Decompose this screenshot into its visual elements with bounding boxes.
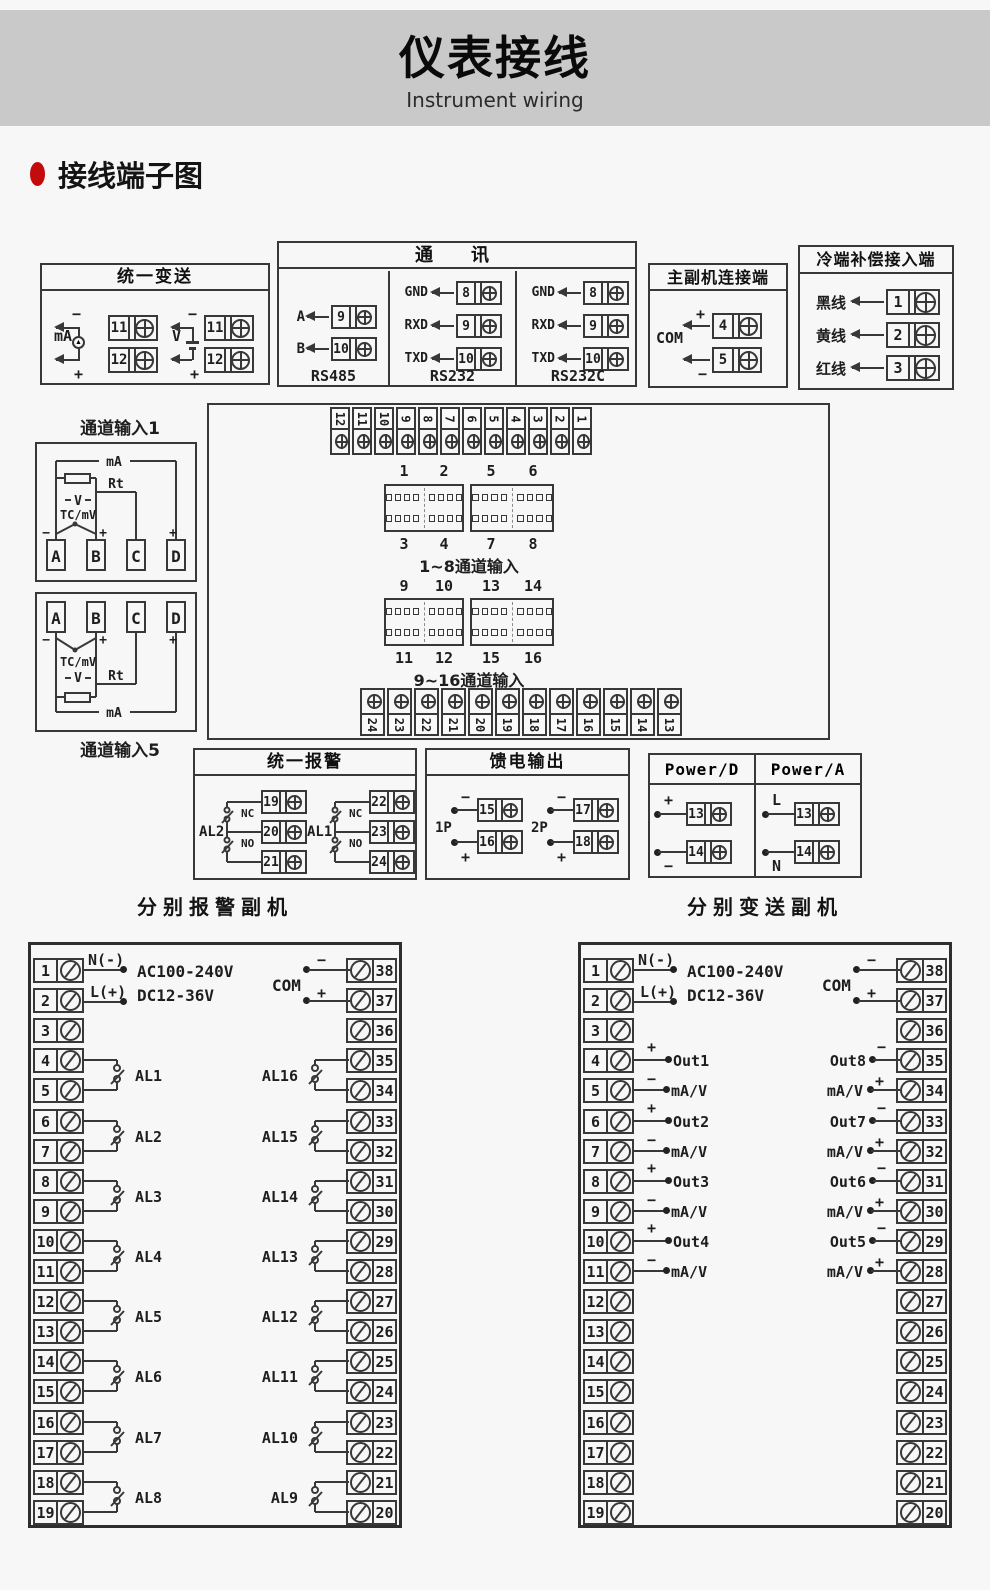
output-label: Out1	[673, 1052, 709, 1070]
terminal-cell: 9	[33, 1199, 84, 1224]
screw-slot-icon	[60, 1080, 81, 1101]
terminal-cell: 8	[583, 1169, 634, 1194]
screw-cross-icon	[394, 694, 409, 709]
output-label: Out8	[806, 1052, 866, 1070]
screw-cross-icon	[502, 694, 517, 709]
master-slave-title: 主副机连接端	[650, 265, 786, 291]
terminal-number: 12	[204, 347, 226, 373]
current-source-icon: ▲	[72, 336, 85, 349]
terminal-number: 11	[108, 315, 130, 341]
ma-label: mA	[106, 706, 122, 721]
terminal-cell: 36	[896, 1018, 947, 1043]
terminal-12: 12	[204, 347, 254, 373]
terminal-cell: 15	[583, 1379, 634, 1404]
signal-label: GND	[519, 285, 555, 300]
terminal-screw	[576, 688, 601, 715]
pin-icon	[482, 494, 489, 501]
terminal-cell: 11	[352, 407, 372, 455]
com-label: COM	[272, 976, 301, 995]
wire	[633, 1210, 665, 1212]
wire-dot	[663, 1147, 670, 1154]
screw-slot-icon	[60, 1381, 81, 1402]
screw-cross-icon	[495, 798, 523, 822]
wire-dot	[670, 998, 677, 1005]
signal-label: A	[281, 309, 305, 325]
terminal-number: 20	[468, 713, 493, 736]
channel1-schematic: mA Rt V TC/mV − + + A B C D	[37, 444, 195, 580]
conn-label: 4	[435, 535, 453, 553]
wire	[192, 350, 194, 360]
terminal-cell: 13	[657, 688, 682, 736]
pin-icon	[395, 608, 401, 615]
terminal-cell: 26	[346, 1319, 397, 1344]
screw-cross-icon	[601, 314, 629, 338]
terminal-cell: 36	[346, 1018, 397, 1043]
column-caption: RS232C	[517, 367, 639, 385]
minus-sign: −	[867, 951, 876, 969]
terminal-11: 11	[204, 315, 254, 341]
terminal-cell: 16	[33, 1410, 84, 1435]
wire-arrow-icon	[684, 325, 710, 327]
wire-dot	[663, 1267, 670, 1274]
wire-arrow-icon	[307, 316, 329, 318]
alarm-label: AL2	[135, 1128, 162, 1146]
screw-slot-icon	[610, 1201, 631, 1222]
terminal-23: 23	[369, 820, 415, 844]
terminal-number: 16	[576, 713, 601, 736]
plus-sign: +	[875, 1072, 884, 1090]
terminal-number: 9	[331, 305, 351, 329]
plus-sign: +	[875, 1193, 884, 1211]
output-unit-label: mA/V	[803, 1082, 863, 1100]
alarm-label: AL4	[135, 1248, 162, 1266]
wire	[871, 1089, 900, 1091]
wire-arrow-icon	[559, 292, 581, 294]
terminal-screw	[462, 428, 482, 455]
screw-cross-icon	[812, 840, 840, 864]
terminal-cell: 35	[346, 1048, 397, 1073]
terminal-cell: 33	[346, 1109, 397, 1134]
terminal-cell: 28	[346, 1259, 397, 1284]
wire-arrow-icon	[432, 325, 454, 327]
channel5-box: − + + TC/mV V Rt mA A B C D	[35, 592, 197, 732]
terminal-cell: 3	[528, 407, 548, 455]
terminal-number: 6	[462, 407, 482, 430]
screw-cross-icon	[349, 337, 377, 361]
no-label: NO	[349, 837, 362, 850]
terminal-screw	[572, 428, 592, 455]
terminal-cell: 26	[896, 1319, 947, 1344]
terminal: 9	[331, 305, 377, 329]
alarm-switch	[303, 1169, 349, 1227]
screw-slot-icon	[900, 1020, 921, 1041]
terminal-number: 4	[712, 313, 734, 339]
screw-slot-icon	[350, 1020, 371, 1041]
wire-arrow-icon	[559, 358, 581, 360]
terminal-number: 2	[886, 322, 910, 348]
screw-cross-icon	[467, 434, 480, 449]
plus-sign: +	[169, 633, 177, 648]
terminal-number: 17	[549, 713, 574, 736]
wire-arrow-icon	[852, 301, 884, 303]
screw-slot-icon	[350, 1171, 371, 1192]
screw-slot-icon	[900, 1321, 921, 1342]
com-label: COM	[656, 329, 683, 347]
terminal-cell: 21	[441, 688, 466, 736]
pin-icon	[517, 494, 524, 501]
terminal-cell: 37	[346, 988, 397, 1013]
terminal-cell: 22	[414, 688, 439, 736]
pin-icon	[456, 608, 462, 615]
output-unit-label: mA/V	[671, 1143, 707, 1161]
screw-slot-icon	[60, 1171, 81, 1192]
screw-slot-icon	[900, 990, 921, 1011]
pin-icon	[491, 515, 498, 522]
screw-slot-icon	[900, 1050, 921, 1071]
wire	[873, 1180, 900, 1182]
terminal-number: 22	[369, 790, 389, 814]
screw-slot-icon	[350, 1412, 371, 1433]
pin-icon	[413, 608, 419, 615]
alarm-switch	[83, 1289, 129, 1347]
terminal-number: 10	[331, 337, 351, 361]
terminal-13: 13	[686, 802, 732, 826]
wire-dot	[665, 1237, 672, 1244]
screw-slot-icon	[900, 1111, 921, 1132]
pin-c: C	[131, 547, 141, 566]
wire-arrow-icon	[172, 359, 192, 361]
minus-sign: −	[647, 1070, 656, 1088]
pin-icon	[395, 515, 401, 522]
terminal-cell: 21	[896, 1470, 947, 1495]
wire	[766, 851, 794, 853]
section-title: 接线端子图	[58, 153, 203, 195]
screw-cross-icon	[812, 802, 840, 826]
wire	[455, 809, 477, 811]
screw-cross-icon	[448, 694, 463, 709]
screw-slot-icon	[900, 1412, 921, 1433]
channel1-box: mA Rt V TC/mV − + + A B C D	[35, 442, 197, 582]
terminal-cell: 1	[33, 958, 84, 983]
conn-label: 12	[432, 649, 456, 667]
nc-label: NC	[241, 807, 254, 820]
wire-arrow-icon	[559, 325, 581, 327]
terminal-number: 11	[352, 407, 372, 430]
terminal-screw	[550, 428, 570, 455]
terminal-screw	[468, 688, 493, 715]
pin-icon	[438, 629, 444, 636]
terminal-cell: 30	[346, 1199, 397, 1224]
minus-sign: −	[877, 1159, 886, 1177]
terminal-cell: 9	[396, 407, 416, 455]
screw-slot-icon	[60, 1201, 81, 1222]
screw-cross-icon	[379, 434, 392, 449]
screw-cross-icon	[555, 434, 568, 449]
pin-icon	[501, 494, 508, 501]
screw-cross-icon	[224, 315, 254, 341]
feed-power-box: 馈电输出 1P − 15 + 16 2P − 17 + 18	[425, 748, 630, 880]
terminal-14: 14	[686, 840, 732, 864]
alarm-switch	[83, 1470, 129, 1528]
wire	[871, 1150, 900, 1152]
terminal-cell: 20	[346, 1500, 397, 1525]
screw-cross-icon	[704, 840, 732, 864]
alarm-label: AL3	[135, 1188, 162, 1206]
pin-connector	[384, 598, 464, 646]
screw-slot-icon	[60, 1321, 81, 1342]
terminal-cell: 27	[896, 1289, 947, 1314]
screw-cross-icon	[664, 694, 679, 709]
screw-slot-icon	[350, 1291, 371, 1312]
wire-dot	[663, 1086, 670, 1093]
terminal-22: 22	[369, 790, 415, 814]
comm-title: 通 讯	[279, 243, 635, 269]
terminal-number: 7	[440, 407, 460, 430]
screw-slot-icon	[900, 1261, 921, 1282]
nc-label: NC	[349, 807, 362, 820]
terminal-number: 14	[630, 713, 655, 736]
minus-sign: −	[647, 1131, 656, 1149]
terminal-number: 5	[712, 347, 734, 373]
v-label: V	[74, 671, 82, 686]
pin-icon	[456, 515, 462, 522]
pin-icon	[527, 629, 534, 636]
output-label: Out3	[673, 1173, 709, 1191]
screw-cross-icon	[357, 434, 370, 449]
wire	[633, 1001, 673, 1003]
wire-dot	[120, 966, 127, 973]
alarm-switch	[303, 1229, 349, 1287]
terminal-screw	[387, 688, 412, 715]
line-label: L	[772, 791, 781, 809]
ac-rating: AC100-240V	[687, 962, 783, 981]
wire	[633, 1120, 667, 1122]
terminal-cell: 28	[896, 1259, 947, 1284]
terminal-1: 1	[886, 289, 940, 315]
screw-slot-icon	[900, 1141, 921, 1162]
screw-slot-icon	[610, 1502, 631, 1523]
terminal-number: 16	[477, 830, 497, 854]
wire	[658, 813, 686, 815]
terminal-screw	[630, 688, 655, 715]
screw-slot-icon	[350, 1351, 371, 1372]
terminal-16: 16	[477, 830, 523, 854]
feed-group-2p: 2P − 17 + 18	[531, 798, 621, 878]
terminal-cell: 19	[495, 688, 520, 736]
plus-sign: +	[99, 633, 107, 648]
screw-slot-icon	[900, 1291, 921, 1312]
pin-icon	[527, 494, 534, 501]
output-label: Out2	[673, 1113, 709, 1131]
pin-icon	[395, 494, 401, 501]
alarm-switch	[303, 1410, 349, 1468]
terminal-12: 12	[108, 347, 158, 373]
screw-slot-icon	[350, 1111, 371, 1132]
conn-label: 16	[521, 649, 545, 667]
terminal-cell: 11	[583, 1259, 634, 1284]
terminal-cell: 18	[583, 1470, 634, 1495]
terminal-number: 21	[441, 713, 466, 736]
alarm-label: AL7	[135, 1429, 162, 1447]
screw-slot-icon	[900, 1231, 921, 1252]
terminal-number: 8	[418, 407, 438, 430]
terminal-cell: 24	[346, 1379, 397, 1404]
minus-sign: −	[557, 788, 566, 806]
terminal-number: 10	[374, 407, 394, 430]
terminal: 9	[456, 314, 502, 338]
terminal-number: 3	[886, 355, 910, 381]
terminal-cell: 15	[603, 688, 628, 736]
conn-label: 8	[524, 535, 542, 553]
pin-a: A	[51, 547, 61, 566]
pin-icon	[438, 515, 444, 522]
conn-label: 5	[482, 462, 500, 480]
terminal: 8	[456, 281, 502, 305]
pin-icon	[536, 608, 543, 615]
terminal-number: 13	[794, 802, 814, 826]
terminal-number: 13	[686, 802, 706, 826]
wire	[633, 1240, 667, 1242]
pin-connector	[384, 484, 464, 532]
terminal-cell: 4	[506, 407, 526, 455]
terminal-cell: 2	[550, 407, 570, 455]
minus-sign: −	[72, 305, 81, 323]
terminal-cell: 4	[583, 1048, 634, 1073]
screw-slot-icon	[900, 960, 921, 981]
terminal-number: 20	[261, 820, 281, 844]
minus-sign: −	[698, 365, 707, 383]
page-banner: 仪表接线 Instrument wiring	[0, 10, 990, 126]
pin-icon	[456, 494, 462, 501]
terminal-cell: 5	[484, 407, 504, 455]
wire	[551, 809, 573, 811]
terminal-15: 15	[477, 798, 523, 822]
screw-cross-icon	[279, 850, 307, 874]
pin-c: C	[131, 609, 141, 628]
minus-sign: −	[647, 1251, 656, 1269]
terminal-number: 21	[261, 850, 281, 874]
pin-icon	[482, 515, 489, 522]
terminal-screw	[360, 688, 385, 715]
screw-cross-icon	[732, 313, 762, 339]
terminal-screw	[352, 428, 372, 455]
pin-icon	[447, 515, 453, 522]
screw-slot-icon	[610, 1020, 631, 1041]
terminal-screw	[603, 688, 628, 715]
page: 仪表接线 Instrument wiring 接线端子图 统一变送 mA − ▲…	[0, 0, 990, 1590]
n-label: N(-)	[638, 951, 674, 969]
output-unit-label: mA/V	[671, 1263, 707, 1281]
feed-group-1p: 1P − 15 + 16	[435, 798, 525, 878]
terminal-screw	[418, 428, 438, 455]
pin-icon	[386, 608, 392, 615]
screw-cross-icon	[601, 281, 629, 305]
pin-icon	[536, 515, 543, 522]
wire	[858, 1000, 900, 1002]
terminal-number: 9	[583, 314, 603, 338]
plus-sign: +	[647, 1038, 656, 1056]
pin-icon	[429, 608, 435, 615]
terminal-14: 14	[794, 840, 840, 864]
pin-d: D	[171, 547, 181, 566]
screw-slot-icon	[60, 1442, 81, 1463]
wire	[308, 1000, 350, 1002]
terminal-number: 3	[528, 407, 548, 430]
screw-cross-icon	[401, 434, 414, 449]
wire-dot	[120, 998, 127, 1005]
terminal-cell: 17	[583, 1440, 634, 1465]
bottom-terminal-strip: 242322212019181716151413	[360, 688, 682, 736]
signal-label: TXD	[392, 351, 428, 366]
n-label: N(-)	[88, 951, 124, 969]
terminal: 8	[583, 281, 629, 305]
screw-cross-icon	[387, 850, 415, 874]
wire	[83, 969, 123, 971]
terminal-cell: 1	[583, 958, 634, 983]
terminal-cell: 25	[896, 1349, 947, 1374]
dc-rating: DC12-36V	[687, 986, 764, 1005]
terminal-screw	[374, 428, 394, 455]
alarm-slave-table: N(-) AC100-240V L(+) DC12-36V COM − + 12…	[28, 942, 402, 1528]
terminal-cell: 8	[418, 407, 438, 455]
terminal-cell: 12	[330, 407, 350, 455]
plus-sign: +	[461, 848, 470, 866]
terminal-number: 15	[603, 713, 628, 736]
pin-icon	[472, 515, 479, 522]
alarm-switch	[83, 1349, 129, 1407]
wire-color-label: 黑线	[804, 292, 846, 313]
terminal-number: 14	[794, 840, 814, 864]
power-d-title: Power/D	[650, 755, 754, 785]
tc-label: TC/mV	[60, 508, 96, 522]
terminal-number: 19	[261, 790, 281, 814]
terminal-screw	[657, 688, 682, 715]
screw-slot-icon	[610, 1412, 631, 1433]
pin-icon	[517, 629, 524, 636]
screw-slot-icon	[610, 1321, 631, 1342]
screw-slot-icon	[350, 990, 371, 1011]
signal-label: TXD	[519, 351, 555, 366]
terminal-cell: 37	[896, 988, 947, 1013]
terminal-cell: 3	[33, 1018, 84, 1043]
channel5-title: 通道输入5	[60, 736, 180, 761]
pin-icon	[546, 515, 553, 522]
terminal-2: 2	[886, 322, 940, 348]
page-title: 仪表接线	[0, 10, 990, 88]
screw-cross-icon	[533, 434, 546, 449]
screw-cross-icon	[387, 820, 415, 844]
plus-sign: +	[647, 1219, 656, 1237]
wire-color-label: 红线	[804, 358, 846, 379]
screw-cross-icon	[387, 790, 415, 814]
screw-slot-icon	[60, 960, 81, 981]
terminal-number: 23	[387, 713, 412, 736]
terminal-number: 22	[414, 713, 439, 736]
screw-cross-icon	[556, 694, 571, 709]
alarm-switch	[303, 1048, 349, 1106]
battery-bar-icon	[186, 341, 199, 344]
terminal-cell: 30	[896, 1199, 947, 1224]
terminal-cell: 29	[896, 1229, 947, 1254]
terminal-cell: 9	[583, 1199, 634, 1224]
terminal-5: 5	[712, 347, 762, 373]
screw-cross-icon	[474, 314, 502, 338]
wire-dot	[670, 966, 677, 973]
wire-arrow-icon	[307, 348, 329, 350]
terminal-cell: 5	[583, 1078, 634, 1103]
alarm-switch	[303, 1349, 349, 1407]
wire-arrow-icon	[172, 327, 192, 329]
